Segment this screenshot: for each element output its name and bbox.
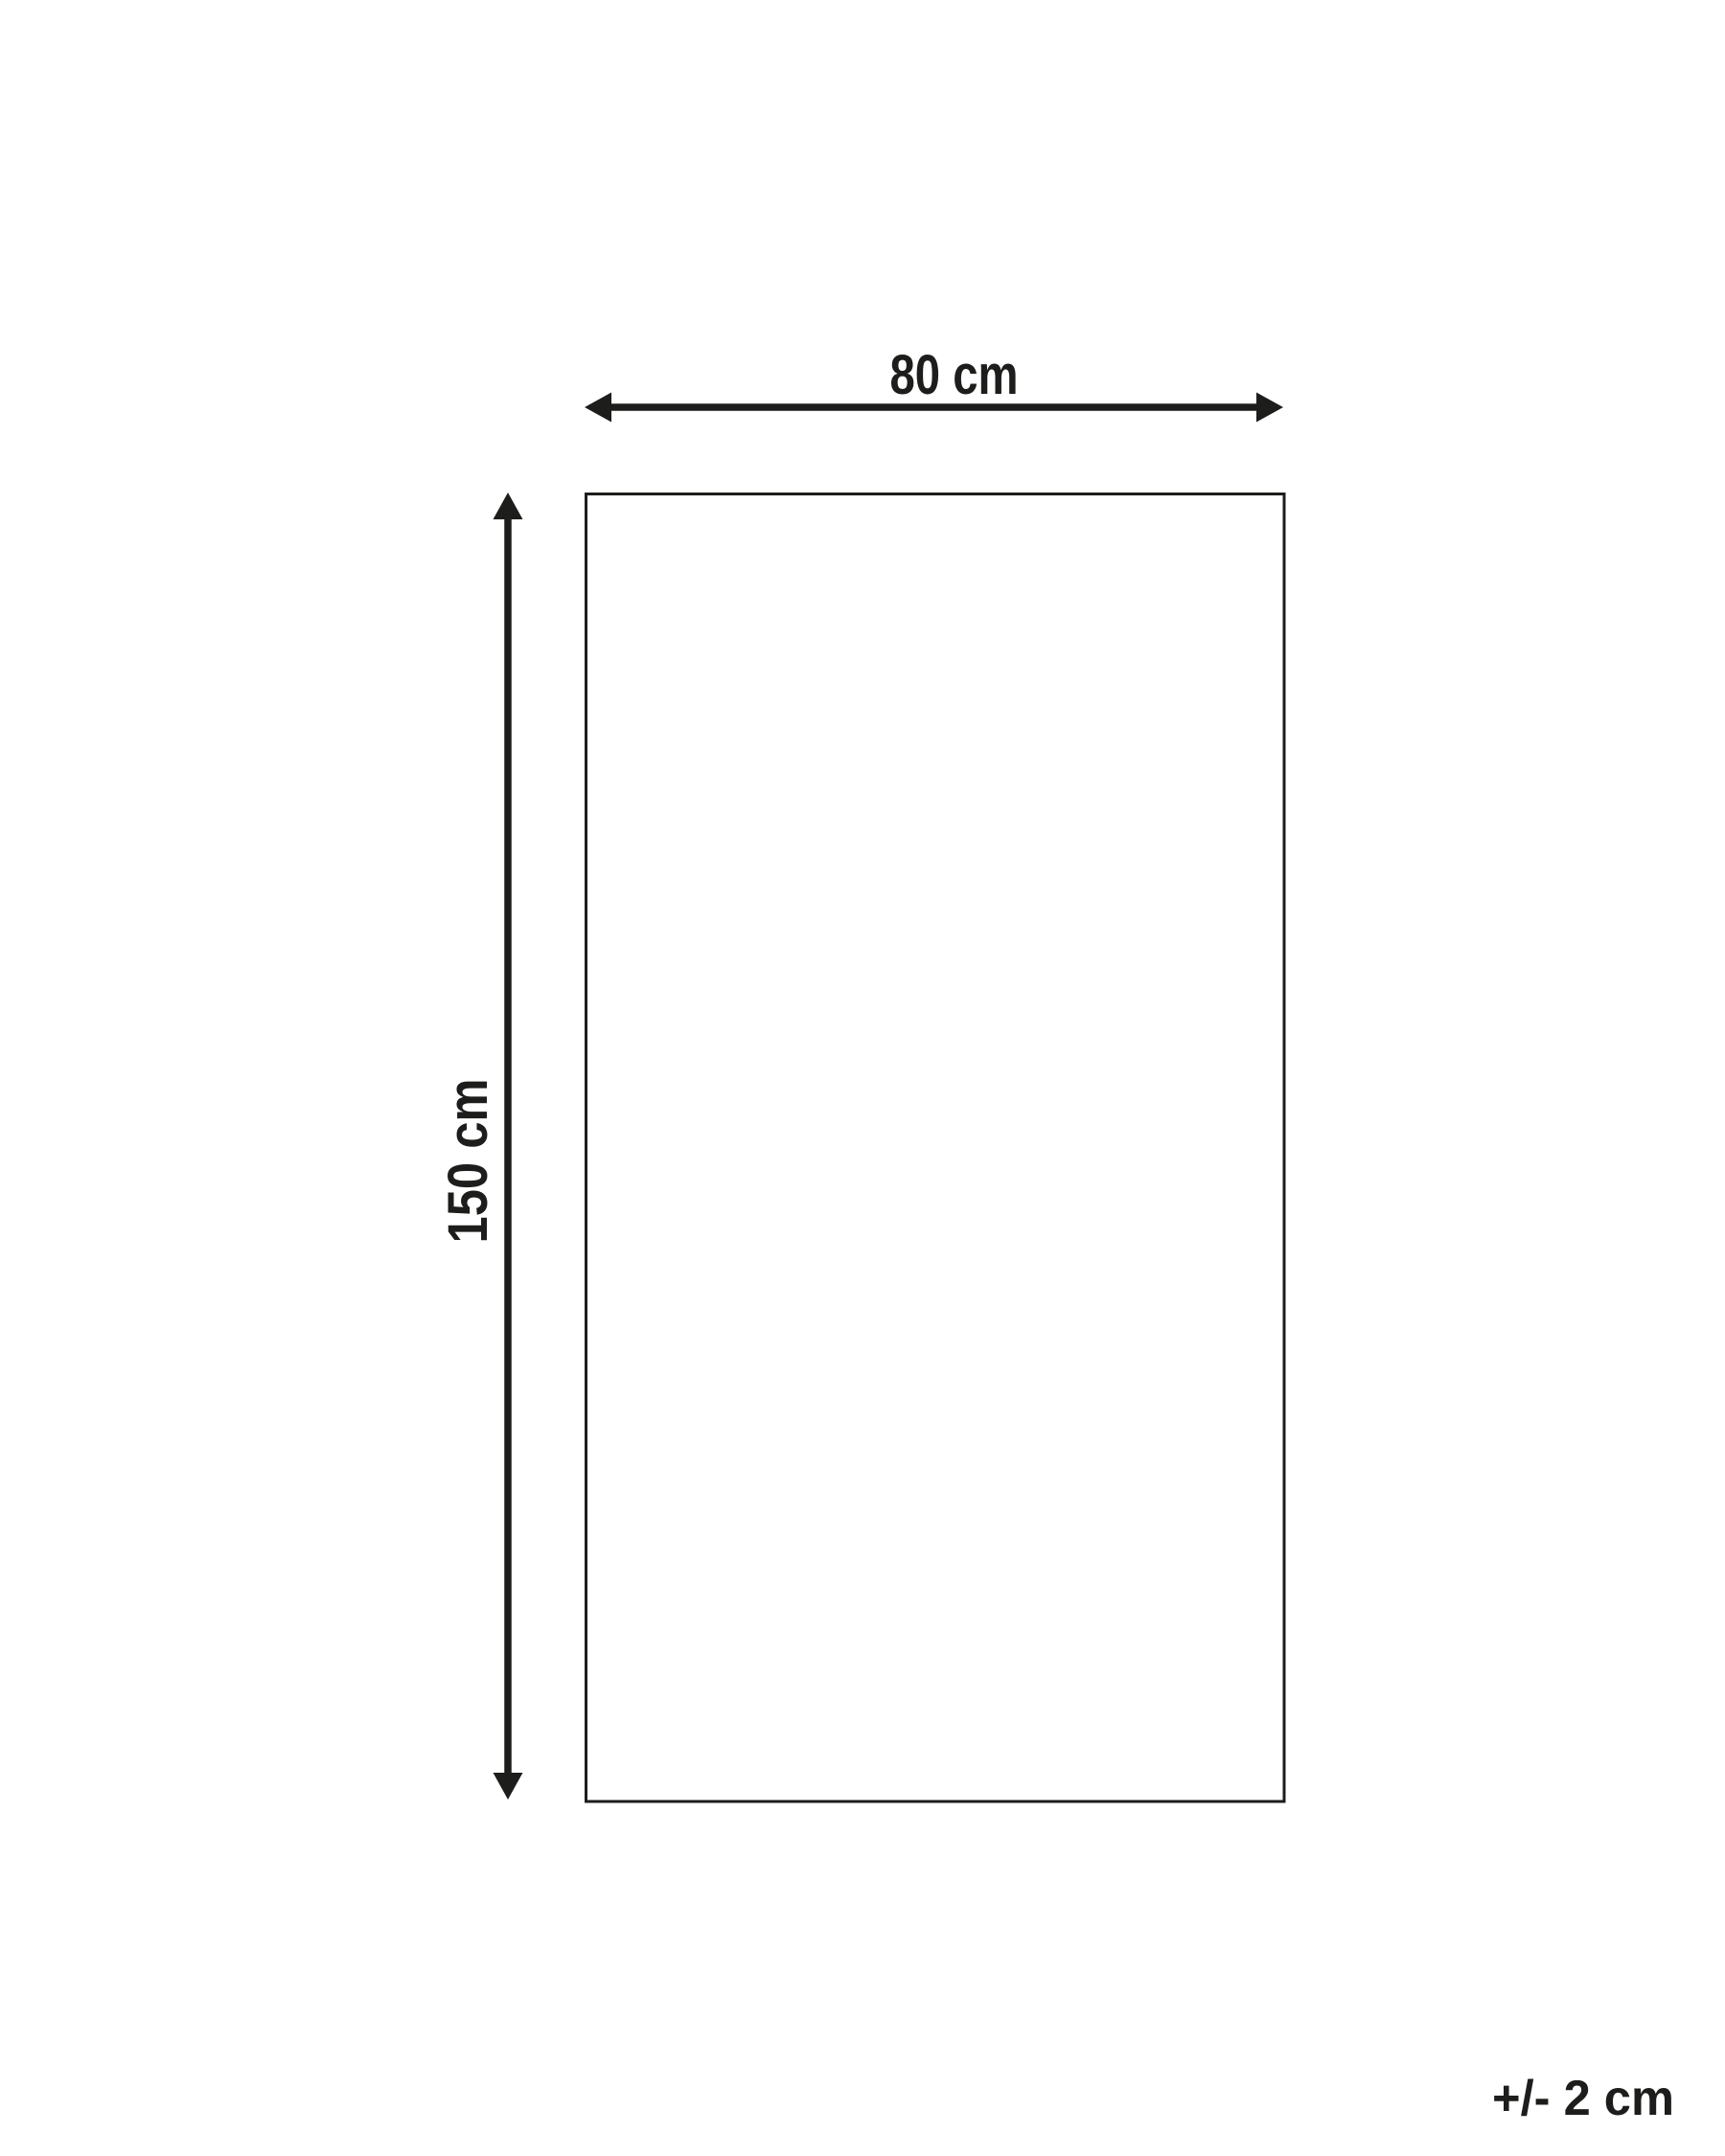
svg-text:150 cm: 150 cm [437, 1079, 499, 1244]
svg-text:+/- 2 cm: +/- 2 cm [1492, 2071, 1674, 2126]
svg-text:80 cm: 80 cm [890, 344, 1019, 406]
